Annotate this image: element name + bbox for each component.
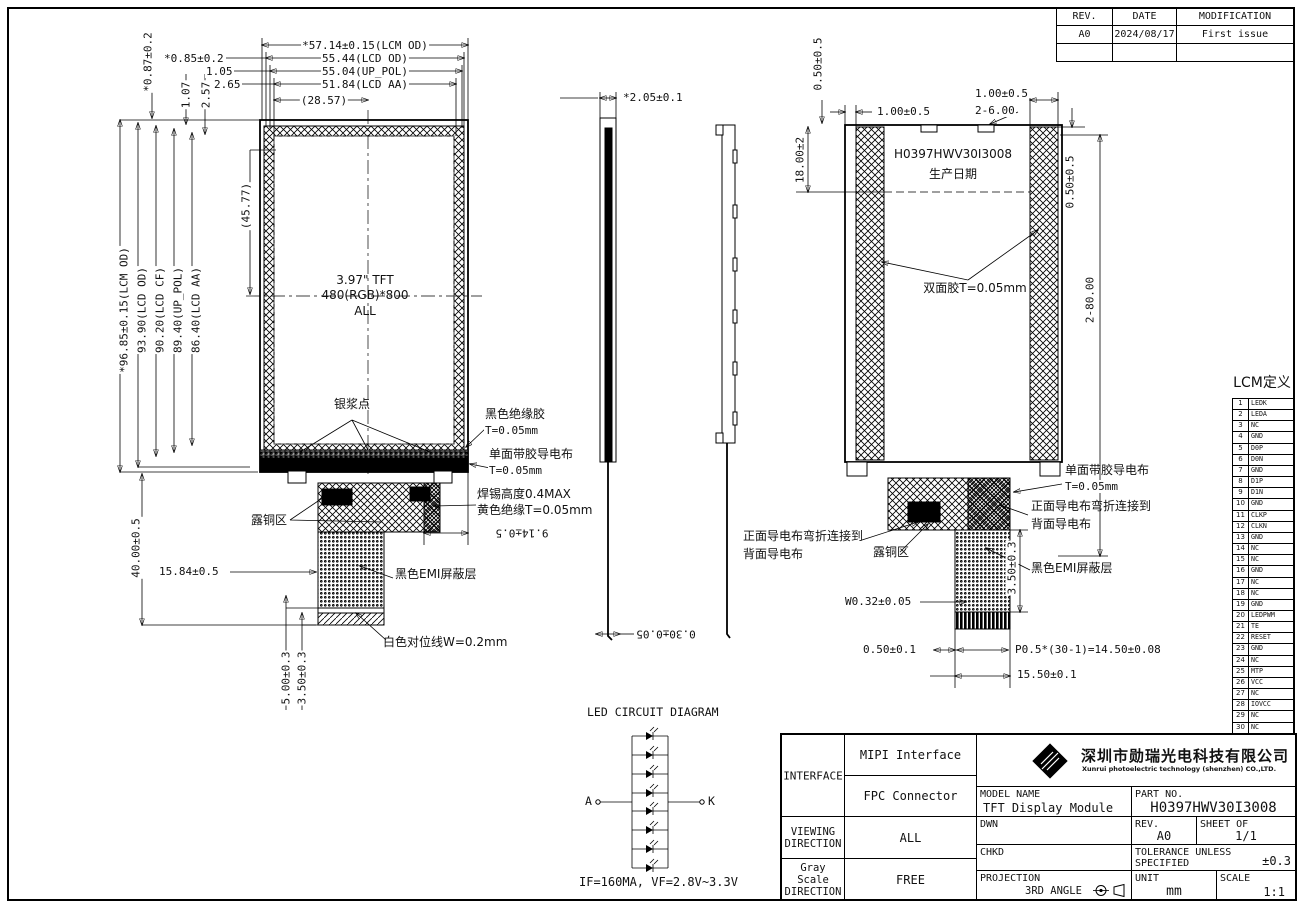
pin-number: 29 — [1233, 711, 1249, 721]
sheet-cell-value: 1/1 — [1197, 829, 1295, 843]
pin-row: 14 NC — [1232, 544, 1294, 555]
dim-rear-pitch: P0.5*(30-1)=14.50±0.08 — [1014, 643, 1162, 656]
pin-name: CLKN — [1249, 522, 1293, 532]
screen-size-text: 3.97" TFT — [335, 274, 394, 287]
tolerance-cell: TOLERANCE UNLESS SPECIFIED ±0.3 — [1132, 845, 1295, 871]
pin-name: CLKP — [1249, 511, 1293, 521]
pin-row: 21 TE — [1232, 622, 1294, 633]
pin-number: 18 — [1233, 589, 1249, 599]
pin-name: GND — [1249, 566, 1293, 576]
scale-cell: SCALE 1:1 — [1217, 871, 1295, 901]
pin-row: 11 CLKP — [1232, 511, 1294, 522]
dim-offset-085: *0.85±0.2 — [163, 52, 225, 65]
pin-name: NC — [1249, 723, 1293, 733]
pin-name: LEDPWM — [1249, 611, 1293, 621]
viewing-direction-value-cell: ALL — [845, 817, 977, 859]
dim-rear-tape-left: 1.00±0.5 — [876, 105, 931, 118]
revision-empty-row — [1056, 44, 1294, 62]
dim-offset-105: 1.05 — [205, 65, 234, 78]
label-rear-conductive-cloth-t: T=0.05mm — [1064, 480, 1119, 493]
revision-row: A0 2024/08/17 First issue — [1056, 26, 1294, 44]
pin-row: 2 LEDA — [1232, 410, 1294, 421]
pin-name: GND — [1249, 644, 1293, 654]
label-white-align-line: 白色对位线W=0.2mm — [382, 636, 508, 649]
label-emi-layer: 黑色EMI屏蔽层 — [394, 568, 477, 581]
pin-name: RESET — [1249, 633, 1293, 643]
pin-row: 5 D0P — [1232, 444, 1294, 455]
label-fold-right-1: 正面导电布弯折连接到 — [1030, 500, 1152, 513]
pin-row: 19 GND — [1232, 600, 1294, 611]
dim-half-width: (28.57) — [300, 94, 348, 107]
pin-number: 16 — [1233, 566, 1249, 576]
dim-rear-notch: 2-6.00 — [974, 104, 1016, 117]
pin-name: D0N — [1249, 455, 1293, 465]
dim-rear-pad-edge: 0.50±0.1 — [862, 643, 917, 656]
led-spec-text: IF=160MA, VF=2.8V~3.3V — [578, 876, 739, 889]
led-symbols — [646, 727, 658, 872]
label-fold-left-2: 背面导电布 — [742, 548, 804, 561]
pin-number: 23 — [1233, 644, 1249, 654]
dim-width-lcm-od: *57.14±0.15(LCM OD) — [301, 39, 429, 52]
pin-row: 27 NC — [1232, 689, 1294, 700]
pin-row: 8 D1P — [1232, 477, 1294, 488]
pin-row: 6 D0N — [1232, 455, 1294, 466]
pin-name: LEDA — [1249, 410, 1293, 420]
pin-number: 5 — [1233, 444, 1249, 454]
gray-scale-label-cell: Gray Scale DIRECTION — [782, 859, 845, 901]
pin-number: 3 — [1233, 421, 1249, 431]
label-solder-height: 焊锡高度0.4MAX — [476, 488, 572, 501]
pin-number: 4 — [1233, 432, 1249, 442]
gray-scale-value-cell: FREE — [845, 859, 977, 901]
pin-name: GND — [1249, 499, 1293, 509]
unit-value: mm — [1132, 884, 1216, 899]
pin-row: 17 NC — [1232, 578, 1294, 589]
pin-number: 11 — [1233, 511, 1249, 521]
pin-number: 20 — [1233, 611, 1249, 621]
side-view-linework — [560, 92, 737, 640]
pin-name: TE — [1249, 622, 1293, 632]
pin-table-title: LCM定义 — [1228, 372, 1296, 392]
dim-rear-trace-width: W0.32±0.05 — [844, 595, 912, 608]
pin-number: 22 — [1233, 633, 1249, 643]
pin-number: 30 — [1233, 723, 1249, 733]
revision-header-row: REV. DATE MODIFICATION — [1056, 7, 1294, 26]
pin-name: MTP — [1249, 667, 1293, 677]
pin-number: 15 — [1233, 555, 1249, 565]
pin-number: 2 — [1233, 410, 1249, 420]
label-rear-conductive-cloth: 单面带胶导电布 — [1064, 464, 1150, 477]
label-fold-left-1: 正面导电布弯折连接到 — [742, 530, 864, 543]
engineering-drawing-sheet: *57.14±0.15(LCM OD) 55.44(LCD OD) 55.04(… — [0, 0, 1302, 908]
pin-row: 22 RESET — [1232, 633, 1294, 644]
pin-row: 16 GND — [1232, 566, 1294, 577]
pin-row: 20 LEDPWM — [1232, 611, 1294, 622]
title-block: INTERFACE MIPI Interface FPC Connector 深… — [780, 733, 1297, 901]
pin-number: 21 — [1233, 622, 1249, 632]
label-conductive-cloth-t: T=0.05mm — [488, 464, 543, 477]
led-anode-label: A — [584, 795, 593, 808]
pin-name: NC — [1249, 589, 1293, 599]
pin-number: 19 — [1233, 600, 1249, 610]
label-silver-paste: 银浆点 — [333, 398, 371, 411]
dim-rear-fpc-width: 15.50±0.1 — [1016, 668, 1078, 681]
pin-number: 25 — [1233, 667, 1249, 677]
pin-number: 17 — [1233, 578, 1249, 588]
pin-number: 27 — [1233, 689, 1249, 699]
screen-resolution-text: 480(RGB)*800 — [320, 289, 409, 302]
pin-name: D0P — [1249, 444, 1293, 454]
third-angle-projection-icon — [1093, 883, 1133, 898]
company-name-en: Xunrui photoelectric technology (shenzhe… — [1082, 765, 1276, 773]
marking-part-number: H0397HWV30I3008 — [893, 148, 1013, 161]
pin-row: 23 GND — [1232, 644, 1294, 655]
pin-row: 18 NC — [1232, 589, 1294, 600]
pin-name: D1P — [1249, 477, 1293, 487]
pin-number: 13 — [1233, 533, 1249, 543]
rev-cell-value: A0 — [1132, 829, 1196, 843]
pin-row: 28 IOVCC — [1232, 700, 1294, 711]
pin-row: 3 NC — [1232, 421, 1294, 432]
scale-value: 1:1 — [1263, 885, 1285, 899]
pin-number: 28 — [1233, 700, 1249, 710]
rear-view-linework — [796, 92, 1108, 688]
pin-row: 10 GND — [1232, 499, 1294, 510]
led-cathode-label: K — [707, 795, 716, 808]
projection-cell: PROJECTION 3RD ANGLE — [977, 871, 1132, 901]
front-view-linework — [120, 38, 490, 710]
pin-row: 7 GND — [1232, 466, 1294, 477]
label-rear-emi-layer: 黑色EMI屏蔽层 — [1030, 562, 1113, 575]
dim-width-lcd-aa: 51.84(LCD AA) — [321, 78, 409, 91]
pin-number: 10 — [1233, 499, 1249, 509]
pin-row: 29 NC — [1232, 711, 1294, 722]
model-name-value: TFT Display Module — [983, 801, 1113, 815]
pin-name: LEDK — [1249, 399, 1293, 409]
dim-fpc-offset: 15.84±0.5 — [158, 565, 220, 578]
marking-production-date: 生产日期 — [928, 168, 978, 181]
pin-number: 9 — [1233, 488, 1249, 498]
pin-number: 6 — [1233, 455, 1249, 465]
pin-number: 24 — [1233, 656, 1249, 666]
pin-row: 9 D1N — [1232, 488, 1294, 499]
rev-value: A0 — [1057, 26, 1113, 44]
pin-row: 1 LEDK — [1232, 399, 1294, 410]
label-black-insulation: 黑色绝缘胶 — [484, 408, 546, 421]
pin-name: NC — [1249, 555, 1293, 565]
pin-number: 12 — [1233, 522, 1249, 532]
pin-name: D1N — [1249, 488, 1293, 498]
modification-col-header: MODIFICATION — [1177, 7, 1294, 26]
viewing-direction-label-cell: VIEWING DIRECTION — [782, 817, 845, 859]
pin-row: 25 MTP — [1232, 667, 1294, 678]
chkd-cell: CHKD — [977, 845, 1132, 871]
pin-name: NC — [1249, 578, 1293, 588]
pin-number: 14 — [1233, 544, 1249, 554]
dim-thickness: *2.05±0.1 — [622, 91, 684, 104]
company-logo-icon — [1029, 740, 1071, 782]
pin-row: 24 NC — [1232, 656, 1294, 667]
pin-row: 4 GND — [1232, 432, 1294, 443]
pin-name: NC — [1249, 656, 1293, 666]
pin-row: 26 VCC — [1232, 678, 1294, 689]
label-copper-area: 露铜区 — [250, 514, 288, 527]
pin-name: GND — [1249, 600, 1293, 610]
rev-cell: REV. A0 — [1132, 817, 1197, 845]
pin-name: NC — [1249, 711, 1293, 721]
label-yellow-insulation: 黄色绝缘T=0.05mm — [476, 504, 593, 517]
pin-name: IOVCC — [1249, 700, 1293, 710]
pin-name: NC — [1249, 421, 1293, 431]
pin-name: NC — [1249, 689, 1293, 699]
unit-cell: UNIT mm — [1132, 871, 1217, 901]
pin-name: NC — [1249, 544, 1293, 554]
label-black-insulation-t: T=0.05mm — [484, 424, 539, 437]
company-name-cn: 深圳市勋瑞光电科技有限公司 — [1081, 745, 1289, 766]
pin-name: VCC — [1249, 678, 1293, 688]
pin-row: 12 CLKN — [1232, 522, 1294, 533]
tolerance-value: ±0.3 — [1262, 854, 1291, 868]
dim-offset-265: 2.65 — [213, 78, 242, 91]
company-logo-cell: 深圳市勋瑞光电科技有限公司 Xunrui photoelectric techn… — [977, 735, 1295, 787]
interface-mipi-cell: MIPI Interface — [845, 735, 977, 776]
model-name-cell: MODEL NAME TFT Display Module — [977, 787, 1132, 817]
pin-definition-table: 1 LEDK 2 LEDA 3 NC 4 GND 5 D0P 6 D0N 7 G… — [1232, 398, 1294, 734]
pin-row: 15 NC — [1232, 555, 1294, 566]
interface-fpc-cell: FPC Connector — [845, 776, 977, 817]
rev-col-header: REV. — [1057, 7, 1113, 26]
label-conductive-cloth: 单面带胶导电布 — [488, 448, 574, 461]
pin-number: 26 — [1233, 678, 1249, 688]
sheet-cell: SHEET OF 1/1 — [1197, 817, 1295, 845]
led-circuit-linework — [596, 727, 704, 872]
rev-modification: First issue — [1177, 26, 1294, 44]
pin-name: GND — [1249, 466, 1293, 476]
interface-label-cell: INTERFACE — [782, 735, 845, 817]
dim-width-up-pol: 55.04(UP_POL) — [321, 65, 409, 78]
date-col-header: DATE — [1113, 7, 1177, 26]
label-rear-copper-area: 露铜区 — [872, 546, 910, 559]
rev-date: 2024/08/17 — [1113, 26, 1177, 44]
label-fold-right-2: 背面导电布 — [1030, 518, 1092, 531]
pin-number: 8 — [1233, 477, 1249, 487]
part-no-value: H0397HWV30I3008 — [1132, 800, 1295, 816]
screen-viewing-text: ALL — [353, 305, 377, 318]
revision-table: REV. DATE MODIFICATION A0 2024/08/17 Fir… — [1056, 7, 1294, 62]
pin-number: 7 — [1233, 466, 1249, 476]
led-diagram-title: LED CIRCUIT DIAGRAM — [586, 706, 720, 719]
projection-value: 3RD ANGLE — [1025, 885, 1082, 897]
pin-row: 13 GND — [1232, 533, 1294, 544]
pin-name: GND — [1249, 432, 1293, 442]
dim-rear-tape-right: 1.00±0.5 — [974, 87, 1029, 100]
pin-number: 1 — [1233, 399, 1249, 409]
pin-row: 30 NC — [1232, 723, 1294, 734]
part-no-cell: PART NO. H0397HWV30I3008 — [1132, 787, 1295, 817]
pin-name: GND — [1249, 533, 1293, 543]
label-double-tape: 双面胶T=0.05mm — [922, 282, 1027, 295]
dim-width-lcd-od: 55.44(LCD OD) — [321, 52, 409, 65]
dwn-cell: DWN — [977, 817, 1132, 845]
